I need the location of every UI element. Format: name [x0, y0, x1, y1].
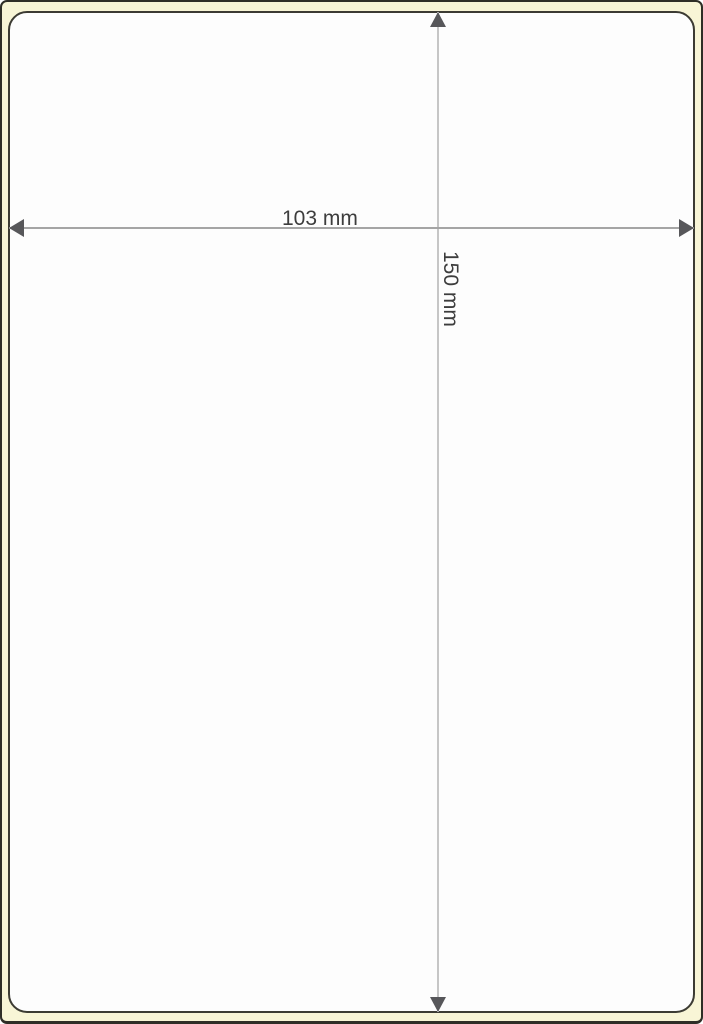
arrowhead-up-icon	[430, 12, 446, 27]
arrowhead-down-icon	[430, 997, 446, 1012]
height-dimension-line	[437, 12, 439, 1012]
height-dimension-label: 150 mm	[440, 251, 461, 327]
label-outline	[8, 11, 695, 1013]
width-dimension-label: 103 mm	[282, 208, 358, 229]
label-dimension-diagram: 103 mm 150 mm	[0, 0, 703, 1024]
backing-sheet: 103 mm 150 mm	[0, 0, 703, 1024]
arrowhead-left-icon	[9, 219, 24, 237]
arrowhead-right-icon	[679, 219, 694, 237]
